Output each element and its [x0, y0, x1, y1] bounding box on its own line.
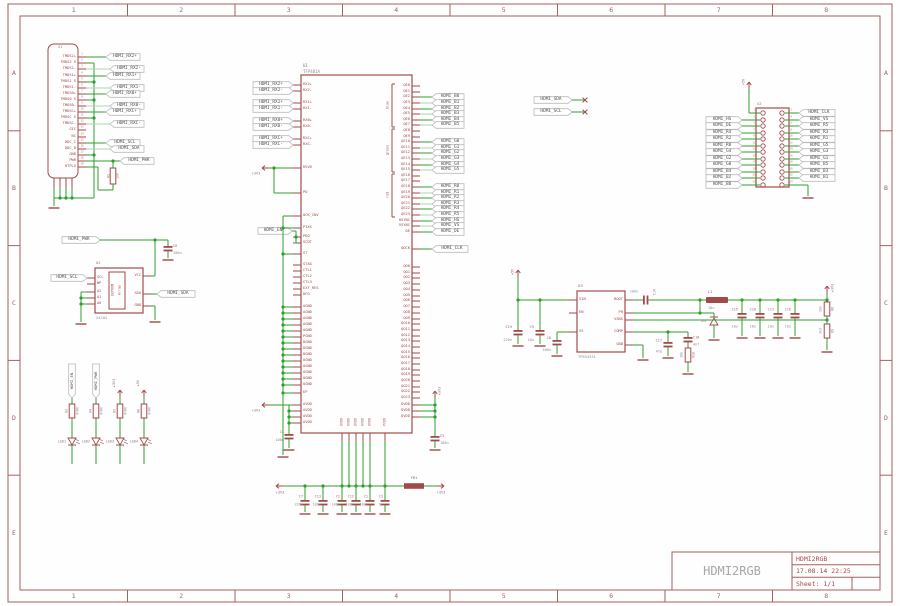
net-label[interactable]	[253, 88, 293, 95]
capacitor[interactable]	[647, 296, 649, 305]
capacitor[interactable]	[791, 313, 800, 315]
capacitor[interactable]	[756, 317, 765, 319]
capacitor[interactable]	[381, 500, 390, 502]
capacitor[interactable]	[514, 330, 523, 332]
net-label[interactable]	[51, 275, 87, 282]
net-label[interactable]	[62, 237, 100, 244]
pad[interactable]	[761, 163, 765, 167]
led-arrow	[124, 442, 128, 444]
capacitor[interactable]	[684, 337, 693, 339]
pad[interactable]	[761, 157, 765, 161]
pad[interactable]	[780, 176, 784, 180]
net-label[interactable]	[93, 364, 100, 398]
pad[interactable]	[761, 150, 765, 154]
pad[interactable]	[780, 131, 784, 135]
net-label[interactable]	[534, 109, 572, 116]
capacitor[interactable]	[285, 438, 294, 440]
pad[interactable]	[761, 144, 765, 148]
capacitor[interactable]	[164, 250, 173, 252]
schematic-sheet: 1122334455667788AABBCCDDEEHDMI2RGBHDMI2R…	[0, 0, 900, 606]
net-label[interactable]	[69, 364, 76, 398]
capacitor[interactable]	[553, 344, 562, 346]
led-arrow	[75, 439, 79, 441]
pad[interactable]	[780, 111, 784, 115]
pad[interactable]	[761, 176, 765, 180]
net-label[interactable]	[799, 149, 835, 156]
capacitor[interactable]	[774, 313, 783, 315]
capacitor[interactable]	[738, 317, 747, 319]
net-label[interactable]	[799, 136, 835, 143]
capacitor[interactable]	[738, 313, 747, 315]
net-label[interactable]	[106, 54, 140, 61]
capacitor[interactable]	[319, 504, 328, 506]
net-label[interactable]	[432, 167, 464, 174]
net-label[interactable]	[432, 229, 464, 236]
capacitor[interactable]	[366, 504, 375, 506]
capacitor[interactable]	[774, 317, 783, 319]
ferrite-bead[interactable]	[404, 483, 424, 489]
pad[interactable]	[761, 111, 765, 115]
pad[interactable]	[761, 170, 765, 174]
led[interactable]	[140, 438, 148, 445]
ic-body-u1[interactable]	[301, 75, 412, 433]
net-label[interactable]	[253, 142, 293, 149]
capacitor[interactable]	[664, 346, 673, 348]
capacitor[interactable]	[338, 504, 347, 506]
net-label[interactable]	[706, 136, 742, 143]
capacitor[interactable]	[338, 500, 347, 502]
led-arrow	[76, 442, 80, 444]
led[interactable]	[116, 438, 124, 445]
net-label[interactable]	[110, 121, 144, 128]
capacitor[interactable]	[285, 434, 294, 436]
capacitor[interactable]	[164, 246, 173, 248]
net-label[interactable]	[106, 73, 140, 80]
resistor[interactable]	[685, 348, 691, 362]
pad[interactable]	[761, 124, 765, 128]
led[interactable]	[92, 438, 100, 445]
led-arrow	[148, 442, 152, 444]
eeprom-core	[109, 272, 125, 309]
led-arrow	[147, 439, 151, 441]
net-label[interactable]	[706, 162, 742, 169]
capacitor[interactable]	[352, 500, 361, 502]
junction-dot	[361, 484, 364, 487]
net-label[interactable]	[799, 162, 835, 169]
led-arrow	[123, 439, 127, 441]
pad[interactable]	[761, 137, 765, 141]
capacitor[interactable]	[536, 330, 545, 332]
junction-dot	[70, 196, 73, 199]
pad[interactable]	[761, 131, 765, 135]
net-label[interactable]	[120, 158, 154, 165]
capacitor[interactable]	[301, 500, 310, 502]
led-arrow	[100, 442, 104, 444]
net-label[interactable]	[706, 123, 742, 130]
capacitor[interactable]	[381, 504, 390, 506]
capacitor[interactable]	[756, 313, 765, 315]
schematic-canvas	[0, 0, 900, 606]
net-label[interactable]	[157, 291, 195, 298]
junction-dot	[58, 196, 61, 199]
ic-body-u3[interactable]	[577, 291, 625, 352]
pad[interactable]	[780, 163, 784, 167]
net-label[interactable]	[110, 66, 144, 73]
resistor[interactable]	[824, 302, 830, 316]
resistor[interactable]	[69, 404, 75, 418]
net-label[interactable]	[799, 175, 835, 182]
net-label[interactable]	[706, 149, 742, 156]
capacitor[interactable]	[553, 340, 562, 342]
capacitor[interactable]	[684, 341, 693, 343]
capacitor[interactable]	[301, 504, 310, 506]
pad[interactable]	[780, 144, 784, 148]
net-label[interactable]	[258, 228, 292, 235]
led-arrow	[99, 439, 103, 441]
net-label[interactable]	[432, 122, 464, 129]
pad[interactable]	[780, 150, 784, 154]
capacitor[interactable]	[514, 334, 523, 336]
capacitor[interactable]	[352, 504, 361, 506]
net-label[interactable]	[253, 124, 293, 131]
pad[interactable]	[761, 118, 765, 122]
junction-dot	[294, 235, 297, 238]
junction-dot	[64, 196, 67, 199]
capacitor[interactable]	[664, 342, 673, 344]
capacitor[interactable]	[319, 500, 328, 502]
ic-body-u2[interactable]	[95, 268, 143, 313]
capacitor[interactable]	[791, 317, 800, 319]
resistor[interactable]	[110, 168, 116, 184]
pad[interactable]	[780, 157, 784, 161]
capacitor[interactable]	[431, 440, 440, 442]
net-label[interactable]	[799, 110, 835, 117]
net-label[interactable]	[253, 106, 293, 113]
diode[interactable]	[710, 318, 718, 325]
pad[interactable]	[780, 118, 784, 122]
pad[interactable]	[780, 170, 784, 174]
pad[interactable]	[780, 137, 784, 141]
net-label[interactable]	[706, 175, 742, 182]
capacitor[interactable]	[643, 296, 645, 305]
resistor[interactable]	[117, 404, 123, 418]
net-label[interactable]	[706, 182, 742, 189]
capacitor[interactable]	[366, 500, 375, 502]
net-label[interactable]	[432, 246, 468, 253]
resistor[interactable]	[93, 404, 99, 418]
junction-dot	[347, 484, 350, 487]
net-label[interactable]	[799, 123, 835, 130]
inductor[interactable]	[706, 297, 728, 303]
title-block	[672, 552, 880, 590]
pad[interactable]	[780, 124, 784, 128]
resistor[interactable]	[824, 324, 830, 338]
net-label[interactable]	[106, 91, 140, 98]
net-label[interactable]	[534, 97, 572, 104]
net-label[interactable]	[106, 109, 140, 116]
capacitor[interactable]	[536, 334, 545, 336]
resistor[interactable]	[141, 404, 147, 418]
hdmi-connector-body[interactable]	[48, 44, 78, 178]
net-label[interactable]	[110, 146, 144, 153]
led[interactable]	[68, 438, 76, 445]
capacitor[interactable]	[431, 436, 440, 438]
